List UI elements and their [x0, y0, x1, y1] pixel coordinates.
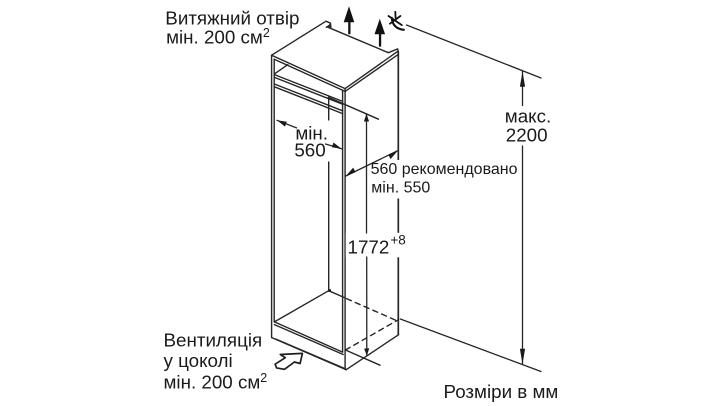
- svg-text:1772: 1772: [348, 236, 390, 257]
- svg-text:560: 560: [294, 139, 325, 160]
- svg-text:макс.: макс.: [505, 105, 551, 126]
- svg-text:+8: +8: [390, 232, 405, 247]
- svg-text:Вентиляція: Вентиляція: [164, 329, 263, 350]
- svg-text:мін. 200 см2: мін. 200 см2: [164, 371, 268, 392]
- svg-text:Розміри в мм: Розміри в мм: [444, 381, 559, 402]
- svg-text:2200: 2200: [506, 125, 548, 146]
- svg-text:мін. 550: мін. 550: [371, 180, 430, 197]
- svg-text:мін. 200 см2: мін. 200 см2: [166, 26, 270, 48]
- svg-text:560 рекомендовано: 560 рекомендовано: [371, 161, 518, 178]
- svg-text:у цоколі: у цоколі: [164, 350, 233, 371]
- svg-text:Витяжний отвір: Витяжний отвір: [165, 7, 299, 28]
